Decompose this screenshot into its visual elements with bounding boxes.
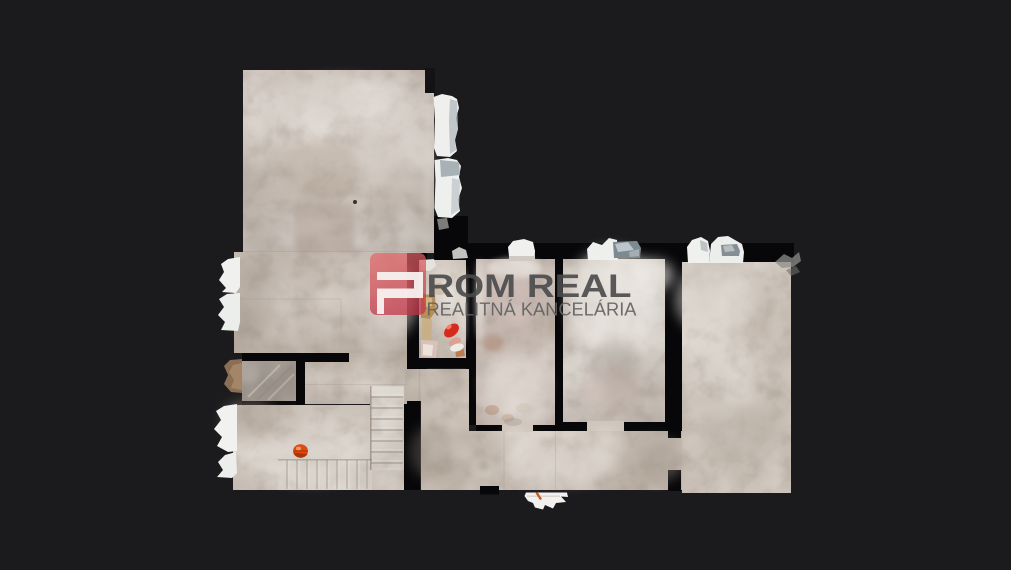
svg-text:REALITNÁ KANCELÁRIA: REALITNÁ KANCELÁRIA (427, 298, 638, 319)
